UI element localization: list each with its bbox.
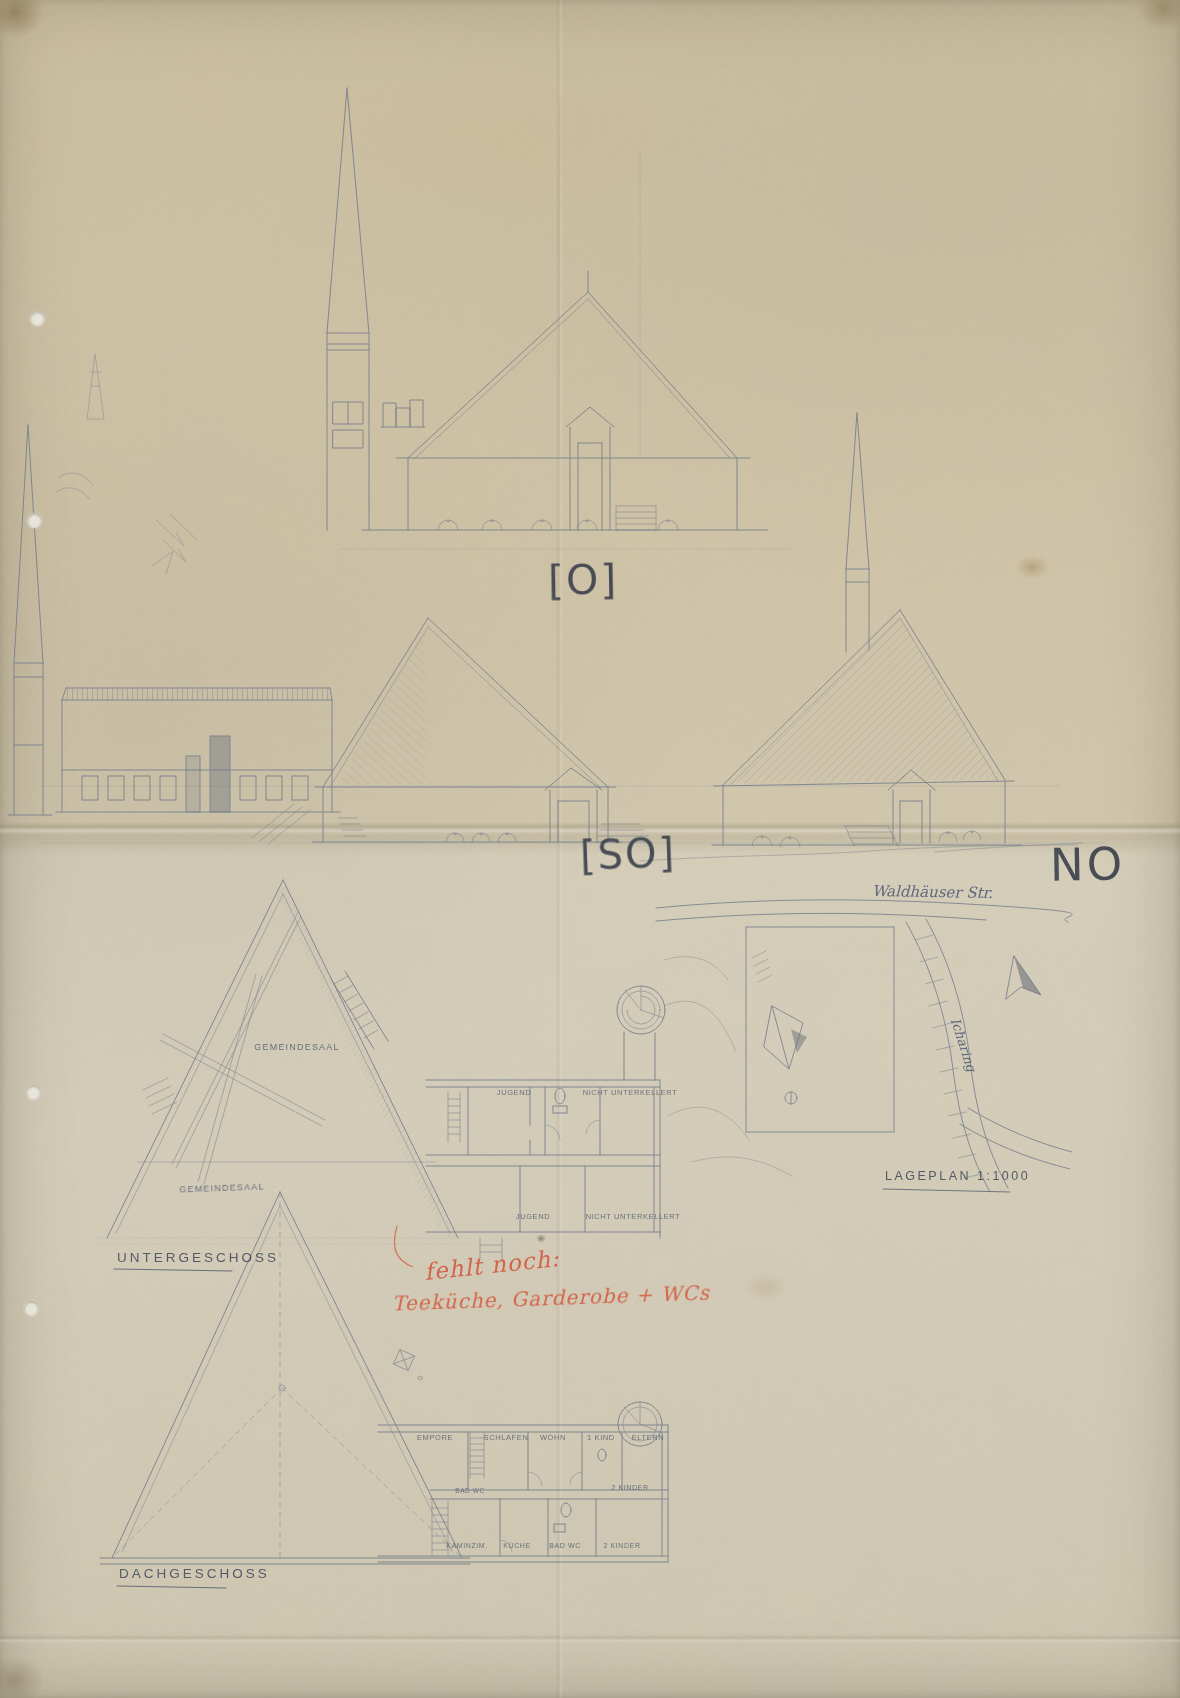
plan-untergeschoss-drawing bbox=[107, 880, 665, 1271]
note-nicht-unterkellert-upper: NICHT UNTERKELLERT bbox=[583, 1088, 678, 1097]
room-label-kaminzimmer: KAMINZIM. bbox=[446, 1542, 488, 1549]
elevation-southeast-label: [SO] bbox=[579, 829, 677, 878]
room-label-schlafen: SCHLAFEN bbox=[484, 1433, 529, 1442]
hole-punch bbox=[27, 513, 42, 528]
hole-punch bbox=[26, 1085, 41, 1100]
site-plan-drawing bbox=[656, 900, 1072, 1192]
construction-guides bbox=[40, 100, 1105, 1244]
elevation-east-drawing bbox=[327, 88, 768, 530]
plan-title-dachgeschoss: DACHGESCHOSS bbox=[119, 1566, 270, 1581]
street-label-waldhaeuser: Waldhäuser Str. bbox=[872, 882, 993, 902]
elevation-northeast-label: NO bbox=[1050, 837, 1126, 891]
note-nicht-unterkellert-lower: NICHT UNTERKELLERT bbox=[586, 1212, 681, 1221]
room-label-empore: EMPORE bbox=[417, 1433, 453, 1442]
room-label-bad: BAD WC bbox=[549, 1542, 581, 1549]
room-label-eltern: ELTERN bbox=[632, 1433, 665, 1442]
plan-title-lageplan: LAGEPLAN 1:1000 bbox=[885, 1169, 1030, 1183]
plan-title-untergeschoss: UNTERGESCHOSS bbox=[117, 1250, 279, 1265]
room-label-kinder-mid: 2 KINDER bbox=[611, 1484, 648, 1491]
north-arrow-icon bbox=[1006, 956, 1041, 999]
room-label-jugend-upper: JUGEND bbox=[497, 1088, 531, 1097]
room-label-gemeindesaal-upper: GEMEINDESAAL bbox=[254, 1042, 339, 1052]
elevation-row-drawing bbox=[8, 413, 1082, 861]
left-margin-sketches bbox=[56, 354, 197, 574]
red-ink-flourish bbox=[394, 1226, 413, 1267]
scanned-sketch-sheet: [O] [SO] NO GEMEINDESAAL GEMEINDESAAL JU… bbox=[0, 0, 1180, 1698]
room-label-kind: 1 KIND bbox=[587, 1433, 615, 1442]
elevation-east-label: [O] bbox=[548, 555, 619, 604]
hole-punch bbox=[30, 311, 45, 326]
room-label-kinder: 2 KINDER bbox=[603, 1542, 640, 1549]
room-label-jugend-lower: JUGEND bbox=[516, 1212, 550, 1221]
room-label-kueche: KÜCHE bbox=[503, 1542, 531, 1549]
room-label-wohn: WOHN bbox=[540, 1433, 566, 1442]
hole-punch bbox=[24, 1301, 39, 1316]
room-label-bad-mid: BAD WC bbox=[455, 1487, 485, 1494]
church-plan-symbol bbox=[764, 1006, 807, 1104]
